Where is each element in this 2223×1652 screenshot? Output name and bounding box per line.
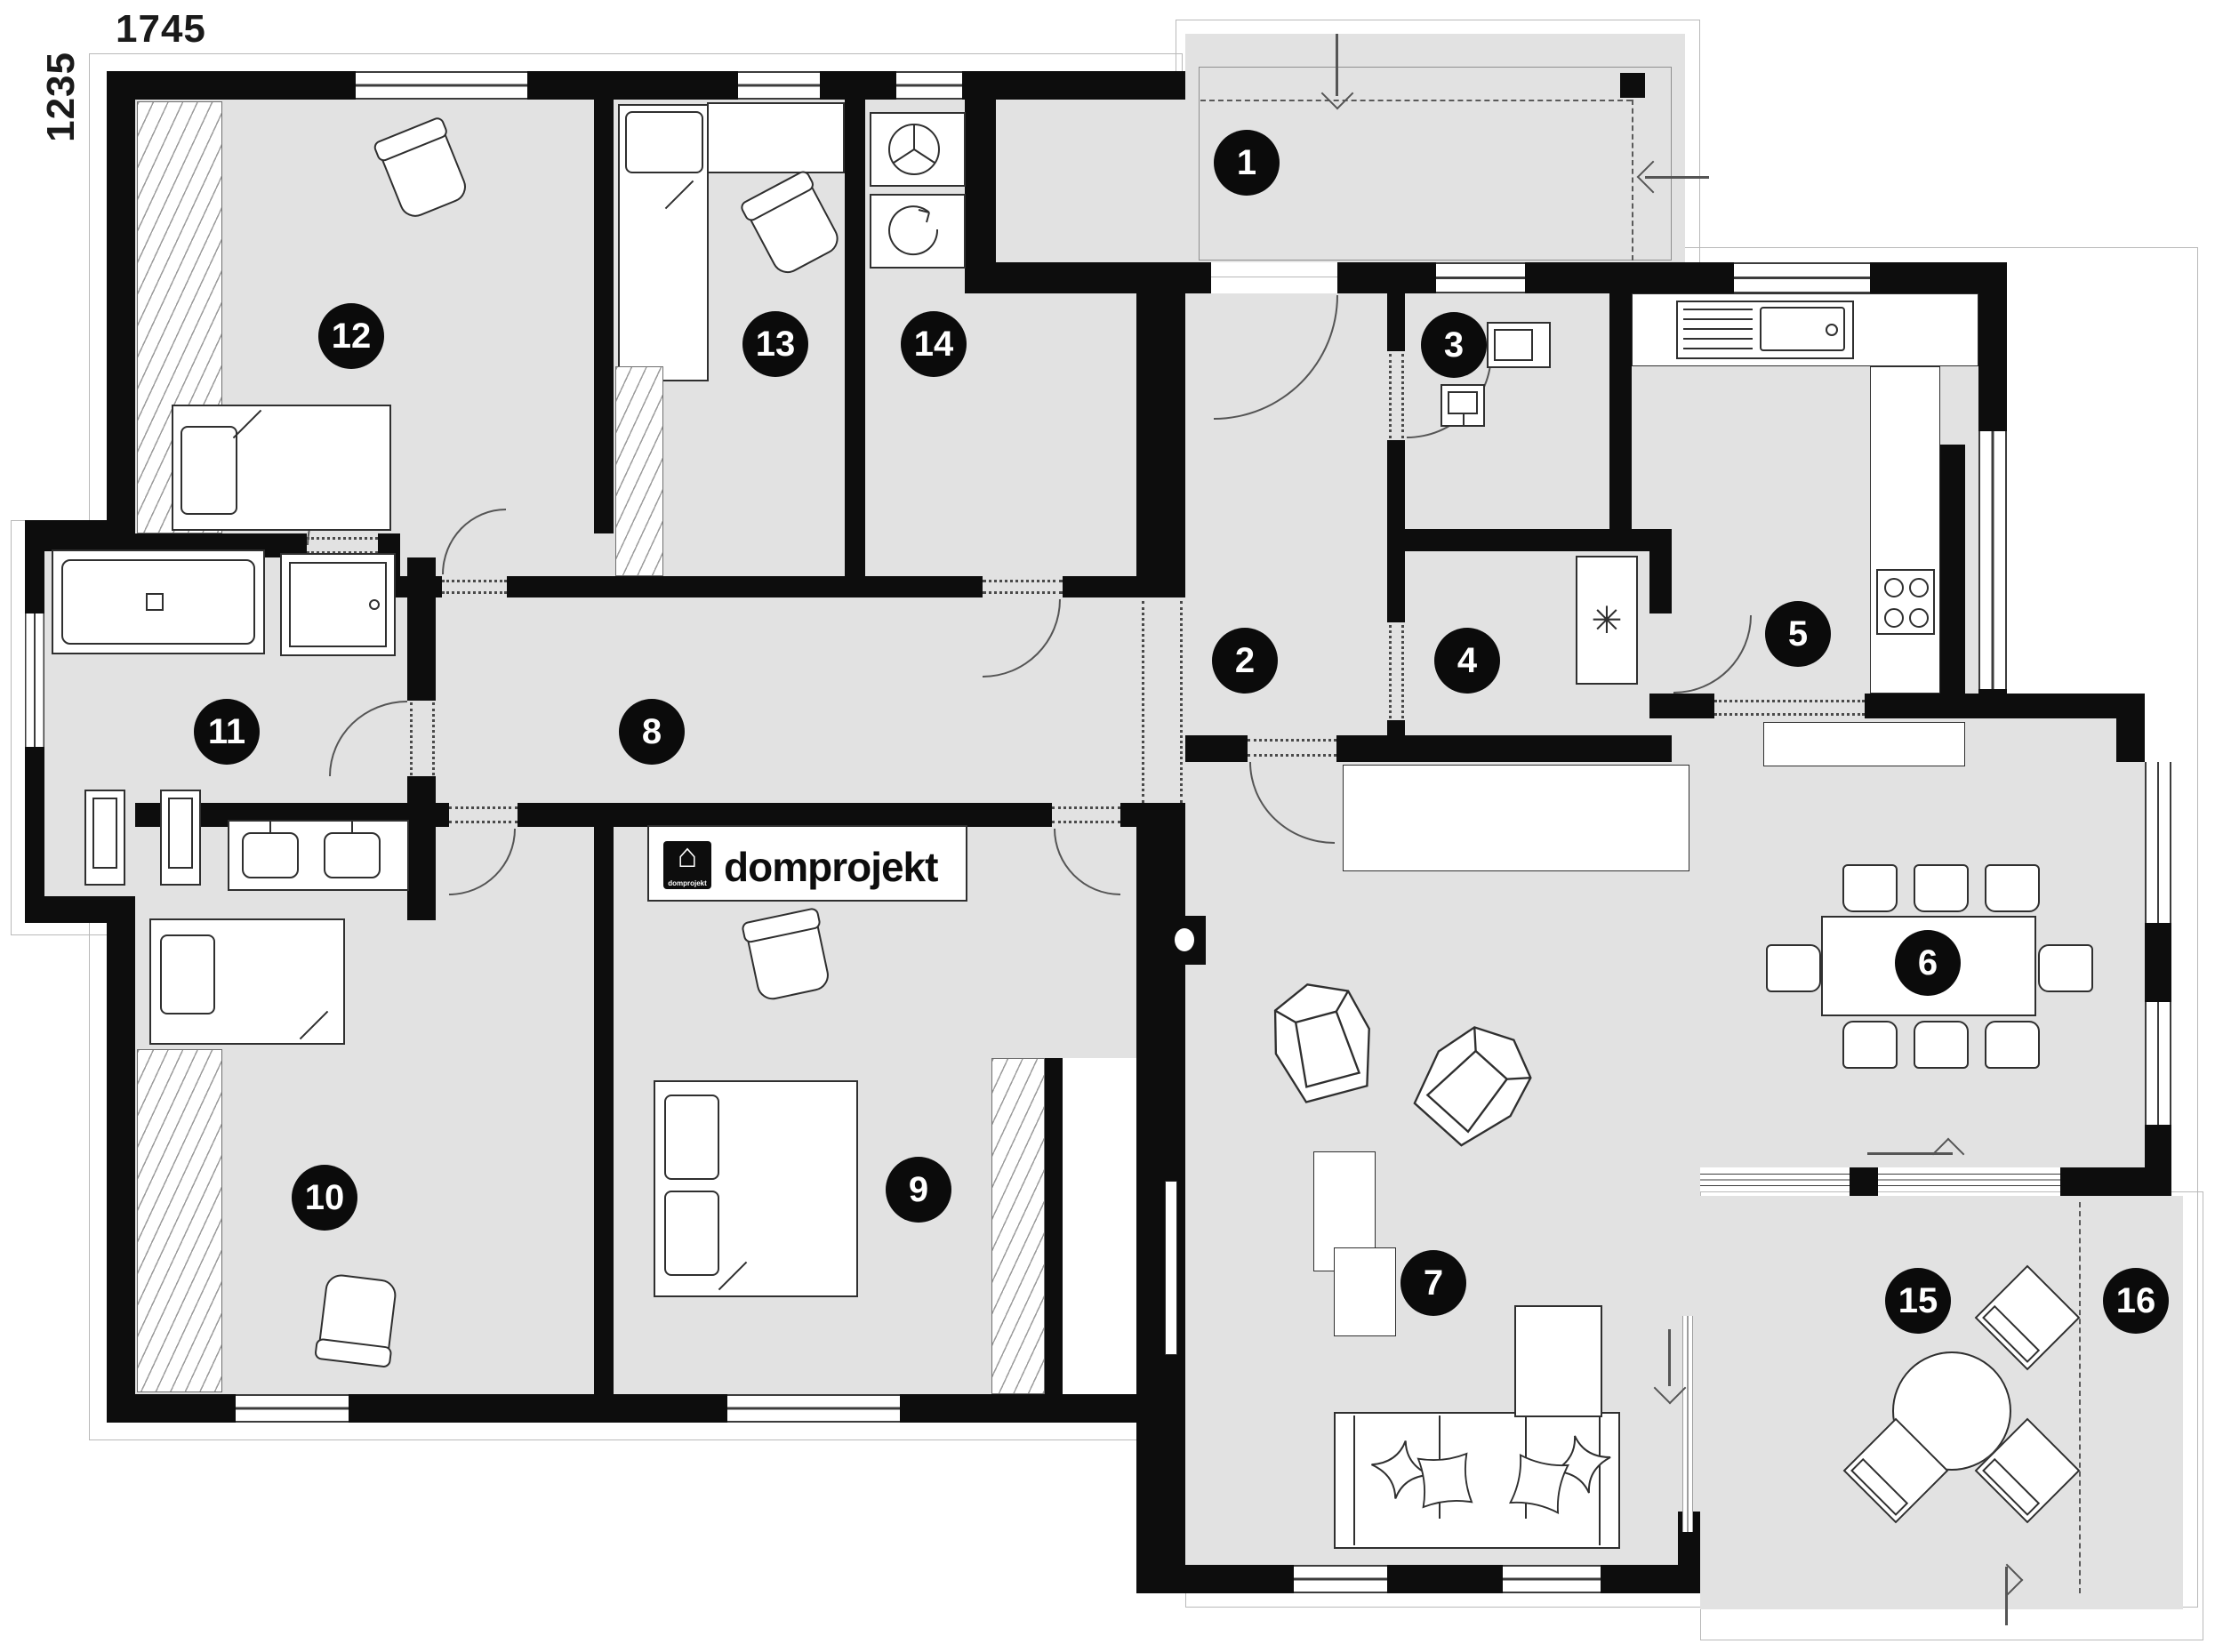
opening [442, 580, 507, 582]
tumble-dryer-icon [870, 194, 966, 269]
wall [1120, 803, 1136, 827]
sofa-chaise [1514, 1305, 1602, 1417]
room-number: 10 [305, 1178, 345, 1218]
opening [1389, 354, 1392, 438]
wall [1609, 529, 1672, 551]
wall [1525, 262, 1734, 293]
washbasin-icon [1487, 322, 1551, 368]
room-number: 5 [1788, 614, 1808, 654]
bathtub-icon [52, 549, 265, 654]
wall [845, 100, 865, 597]
coffee-table [1334, 1247, 1396, 1336]
opening [1401, 354, 1404, 438]
room-number: 1 [1237, 143, 1256, 183]
wall [1940, 445, 1965, 694]
wall [1185, 735, 1248, 762]
room-number: 7 [1424, 1263, 1443, 1303]
opening [432, 702, 435, 775]
opening [442, 591, 507, 594]
room-number: 13 [756, 325, 796, 365]
wall [900, 1394, 1165, 1423]
wall [116, 1394, 236, 1423]
wall [1387, 529, 1630, 551]
opening [1389, 625, 1392, 718]
room-number: 14 [914, 325, 954, 365]
wall [1649, 694, 1672, 718]
wall [594, 100, 614, 533]
toilet-stem [1463, 414, 1465, 427]
wall [1185, 1565, 1294, 1593]
window [2145, 1002, 2171, 1125]
basin [324, 832, 381, 878]
window [1503, 1565, 1601, 1593]
fireplace-opening [1175, 928, 1194, 951]
wall [820, 71, 896, 100]
toilet-bowl [92, 798, 117, 869]
toilet-icon [1441, 384, 1485, 427]
bed-pillow [625, 111, 703, 173]
room-badge-7: 7 [1400, 1250, 1466, 1316]
room-number: 11 [208, 712, 245, 752]
wall [407, 776, 436, 920]
tv-icon [1165, 1181, 1177, 1355]
bed-fold-line [300, 1011, 329, 1040]
desk: ⌂ domprojekt domprojekt [647, 825, 967, 902]
room-number: 3 [1444, 325, 1464, 365]
wardrobe [615, 366, 663, 576]
roof-overhang-line [1632, 100, 1633, 261]
window [896, 71, 962, 100]
wall [1672, 694, 1714, 718]
wall [507, 576, 983, 597]
fireplace-icon [1163, 916, 1206, 965]
room-number: 2 [1235, 641, 1255, 681]
domprojekt-logo-mark: ⌂ domprojekt [663, 841, 711, 889]
wall [1850, 1167, 1878, 1196]
room-badge-16: 16 [2103, 1268, 2169, 1334]
wall [594, 827, 614, 1394]
dining-chair [1985, 1021, 2040, 1069]
sideboard [1343, 765, 1689, 871]
wardrobe [991, 1058, 1045, 1394]
sliding-glass-door [1878, 1174, 2060, 1186]
opening [1142, 601, 1144, 803]
wall [1337, 262, 1436, 293]
opening [1052, 806, 1120, 809]
burner [1884, 578, 1904, 597]
freezer-icon: ✳ [1576, 556, 1638, 685]
washing-machine-icon [870, 112, 966, 187]
wall [518, 803, 1052, 827]
bed [654, 1080, 858, 1297]
opening [983, 580, 1063, 582]
desk [707, 102, 845, 173]
kitchen-sink-icon [1676, 301, 1854, 359]
window [356, 71, 527, 100]
window [1294, 1565, 1387, 1593]
room-badge-11: 11 [194, 699, 260, 765]
opening [1714, 700, 1865, 702]
opening [1248, 754, 1336, 757]
wall [25, 747, 44, 896]
bed-pillow [160, 934, 215, 1014]
wardrobe [137, 1049, 222, 1392]
opening [1401, 625, 1404, 718]
wall [1063, 576, 1136, 597]
bidet-bowl [168, 798, 193, 869]
sliding-glass-door [1682, 1316, 1693, 1532]
wall [965, 100, 996, 293]
opening [410, 702, 413, 775]
domprojekt-logo-text: domprojekt [724, 843, 937, 891]
wall [407, 557, 436, 701]
wall [1601, 1565, 1700, 1593]
tub-drain [146, 593, 164, 611]
sink-faucet [1826, 324, 1838, 336]
burner [1884, 608, 1904, 628]
room-badge-12: 12 [318, 303, 384, 369]
room-badge-2: 2 [1212, 628, 1278, 694]
freezer-symbol: ✳ [1591, 598, 1622, 642]
window [727, 1394, 900, 1423]
wall [996, 262, 1185, 293]
dining-chair [1914, 1021, 1969, 1069]
wall [527, 71, 738, 100]
wall [1978, 267, 2007, 431]
bed-pillow [664, 1095, 719, 1180]
wall [1045, 1058, 1063, 1394]
toilet-bowl [1448, 391, 1478, 414]
dimension-width: 1745 [116, 7, 206, 52]
window [2145, 762, 2171, 923]
window [25, 613, 44, 747]
burner [1909, 578, 1929, 597]
dining-chair [1914, 864, 1969, 912]
room-badge-15: 15 [1885, 1268, 1951, 1334]
wall [962, 71, 1185, 100]
kitchen-counter [1870, 366, 1940, 694]
opening [449, 821, 518, 823]
bed [149, 918, 345, 1045]
opening [449, 806, 518, 809]
house-icon: ⌂ [663, 838, 711, 876]
armchair [317, 1272, 398, 1364]
sofa-armrest-line [1353, 1415, 1355, 1545]
dimension-height: 1235 [39, 52, 84, 142]
room-badge-3: 3 [1421, 312, 1487, 378]
wall [116, 71, 356, 100]
room-badge-6: 6 [1895, 930, 1961, 996]
opening [1714, 713, 1865, 716]
room-number: 6 [1918, 943, 1938, 983]
opening [1180, 601, 1183, 803]
room-number: 16 [2116, 1281, 2156, 1321]
dining-chair [1842, 864, 1898, 912]
bed-pillow [664, 1191, 719, 1276]
room-badge-8: 8 [619, 699, 685, 765]
window [236, 1394, 349, 1423]
room-badge-4: 4 [1434, 628, 1500, 694]
opening [1052, 821, 1120, 823]
roof-overhang-line [1200, 100, 1632, 101]
room-badge-13: 13 [742, 311, 808, 377]
burner [1909, 608, 1929, 628]
porch-post [1620, 73, 1645, 98]
wall [2145, 923, 2171, 1002]
shower-icon [280, 553, 396, 656]
basin [242, 832, 299, 878]
desk-chair [744, 910, 832, 1002]
window [1978, 431, 2007, 689]
room-badge-14: 14 [901, 311, 967, 377]
bed [172, 405, 391, 531]
wall [1185, 262, 1211, 293]
basin [1494, 329, 1533, 361]
bed [618, 104, 709, 381]
room-number: 15 [1898, 1281, 1938, 1321]
wall [107, 71, 135, 551]
wall [25, 896, 135, 923]
room-badge-1: 1 [1214, 130, 1280, 196]
sofa-pillow [1505, 1449, 1574, 1519]
wall [1387, 293, 1405, 351]
bed-pillow [181, 426, 237, 515]
room-number: 9 [909, 1170, 928, 1210]
wall [349, 1394, 727, 1423]
wall [1649, 551, 1672, 613]
window [738, 71, 820, 100]
room-badge-9: 9 [886, 1157, 951, 1223]
room-number: 12 [332, 317, 372, 357]
bed-fold-line [665, 180, 694, 210]
wall [107, 896, 135, 1423]
faucet-line [269, 820, 271, 832]
double-washbasin-icon [228, 820, 409, 891]
logo-caption: domprojekt [663, 879, 711, 887]
sliding-glass-door [1700, 1174, 1850, 1186]
wall [25, 551, 44, 613]
terrace-divider-line [2079, 1202, 2081, 1593]
floor-plan: 1745 1235 [0, 0, 2223, 1652]
opening [983, 591, 1063, 594]
wall [1387, 1565, 1503, 1593]
window [1734, 262, 1870, 293]
tv-niche [1063, 1058, 1136, 1394]
dining-chair [1766, 944, 1821, 992]
dining-chair [2038, 944, 2093, 992]
wall [2116, 718, 2145, 762]
room-badge-10: 10 [292, 1165, 357, 1231]
room-number: 8 [642, 712, 662, 752]
window [1436, 262, 1525, 293]
kitchen-lower-cabinet [1763, 722, 1965, 766]
shower-drain [369, 599, 380, 610]
bed-fold-line [718, 1262, 748, 1291]
dining-chair [1842, 1021, 1898, 1069]
faucet-line [351, 820, 353, 832]
toilet-icon [84, 790, 125, 886]
sofa-pillow [1413, 1448, 1478, 1513]
wall [1609, 293, 1632, 529]
wall [2060, 1167, 2171, 1196]
wall [1978, 689, 2007, 718]
wall [1336, 735, 1672, 762]
bidet-icon [160, 790, 201, 886]
sink-drainer [1683, 309, 1753, 349]
room-badge-5: 5 [1765, 601, 1831, 667]
room-number: 4 [1457, 641, 1477, 681]
cooktop-icon [1876, 569, 1935, 635]
opening [1248, 739, 1336, 742]
bed-fold-line [233, 410, 262, 439]
dining-chair [1985, 864, 2040, 912]
wall [1136, 293, 1185, 597]
